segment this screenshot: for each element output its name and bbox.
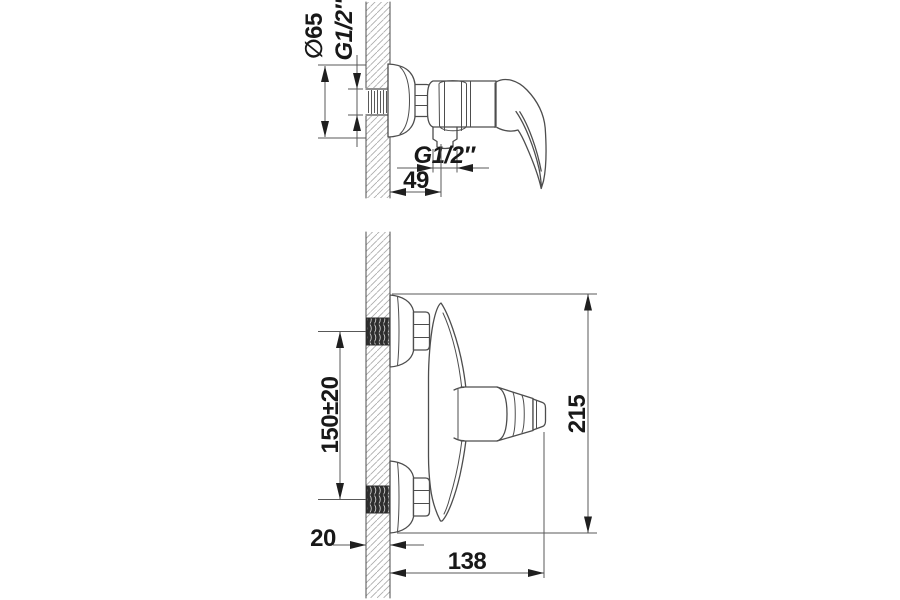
dim-inlet-thread-lines xyxy=(348,55,363,147)
inlet-connector-lower xyxy=(367,486,390,513)
dim-label-outlet-thread: G1/2″ xyxy=(413,142,476,169)
dim-label-215: 215 xyxy=(564,395,591,434)
dim-label-inlet-thread: G1/2″ xyxy=(331,0,358,61)
mounting-nut-front-lower xyxy=(414,478,430,516)
inlet-pipe-threads xyxy=(369,90,387,114)
front-view: 150±20 215 20 138 xyxy=(310,232,597,598)
escutcheon-front-upper xyxy=(390,295,414,367)
side-view: ∅65 G1/2″ G1/2″ 49 xyxy=(301,0,546,198)
dim-label-138: 138 xyxy=(448,548,487,575)
handle-knob-front xyxy=(533,399,546,430)
escutcheon-side xyxy=(388,64,415,137)
escutcheon-front-lower xyxy=(390,461,414,533)
technical-drawing: ∅65 G1/2″ G1/2″ 49 xyxy=(0,0,900,600)
handle-cone-front-seams xyxy=(513,393,524,436)
wall-hatch-front xyxy=(366,232,390,598)
dimension-150-spacing: 150±20 xyxy=(317,332,366,500)
dim-label-20: 20 xyxy=(310,525,336,552)
dim-label-49: 49 xyxy=(403,167,429,194)
dim-label-dia65: ∅65 xyxy=(301,13,328,59)
cartridge-base-mask xyxy=(458,388,497,441)
dim-label-150: 150±20 xyxy=(317,376,344,453)
dimension-inlet-thread: G1/2″ xyxy=(331,0,363,147)
mounting-nut-front-upper xyxy=(414,312,430,350)
inlet-connector-upper xyxy=(367,318,390,345)
handle-lever-side xyxy=(496,80,546,189)
